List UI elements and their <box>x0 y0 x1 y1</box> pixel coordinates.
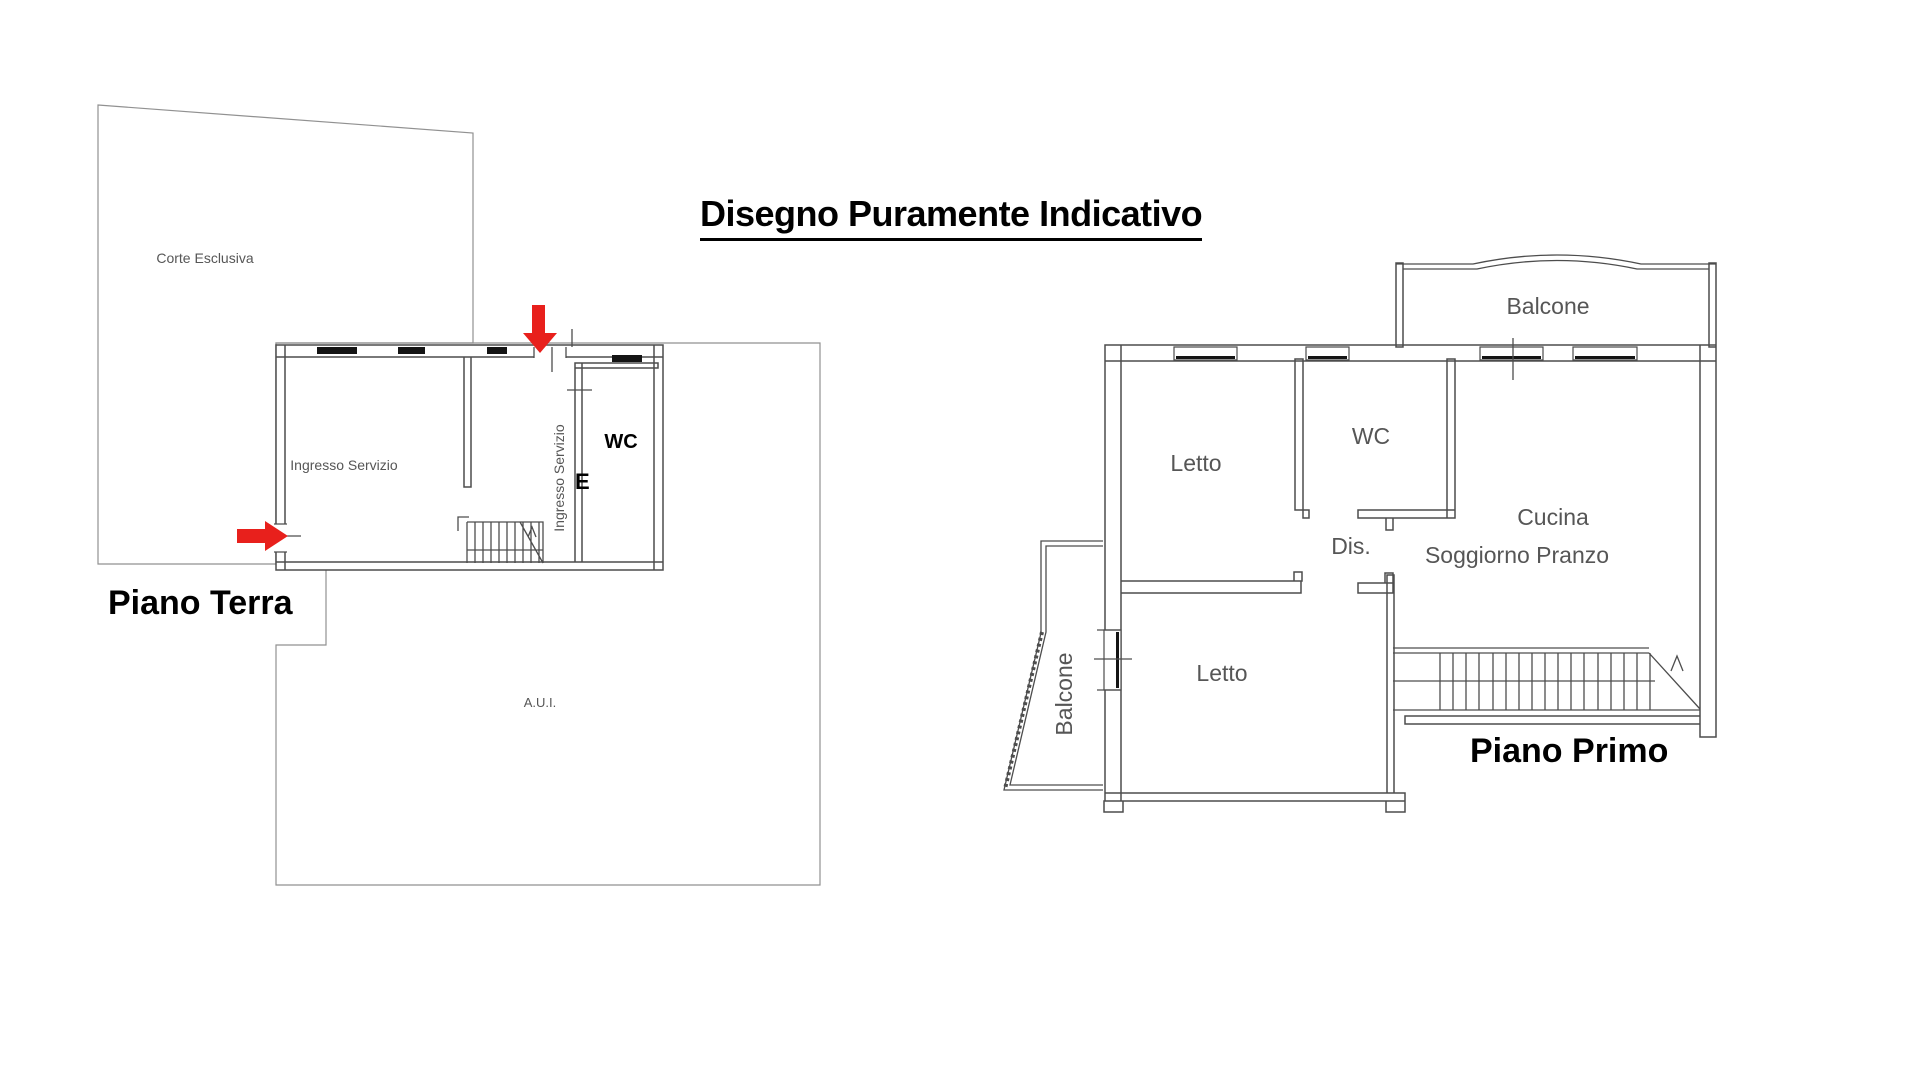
drawing-title: Disegno Puramente Indicativo <box>700 196 1202 241</box>
ground-door-ticks <box>274 329 592 552</box>
ingresso-servizio-label: Ingresso Servizio <box>290 457 398 473</box>
piano-terra-heading: Piano Terra <box>108 586 293 620</box>
first-floor-stairs <box>1393 648 1700 710</box>
ground-stairs <box>458 517 543 563</box>
floorplan-drawing: Corte Esclusiva Ingresso Servizio Ingres… <box>0 0 1920 1087</box>
balcony-left-hatched-edge <box>1005 632 1042 789</box>
cucina-label: Cucina <box>1517 504 1589 530</box>
piano-primo-heading: Piano Primo <box>1470 734 1668 768</box>
e-label: E <box>575 469 590 494</box>
aui-label: A.U.I. <box>524 695 557 710</box>
letto-lower-label: Letto <box>1196 660 1247 686</box>
corte-esclusiva-label: Corte Esclusiva <box>156 250 253 266</box>
balcone-left-label: Balcone <box>1051 652 1077 735</box>
first-floor-plan: Balcone Letto WC Dis. Cucina Soggiorno P… <box>1004 255 1716 812</box>
aui-boundary <box>276 343 820 885</box>
wc-label-ground: WC <box>604 431 637 453</box>
balcone-top-label: Balcone <box>1506 293 1589 319</box>
ingresso-servizio-vertical-label: Ingresso Servizio <box>551 424 567 532</box>
letto-upper-label: Letto <box>1170 450 1221 476</box>
dis-label: Dis. <box>1331 533 1371 559</box>
soggiorno-pranzo-label: Soggiorno Pranzo <box>1425 542 1609 568</box>
wc-label-first: WC <box>1352 423 1390 449</box>
first-floor-walls <box>1104 263 1716 812</box>
balcony-top-parapet <box>1396 255 1716 269</box>
